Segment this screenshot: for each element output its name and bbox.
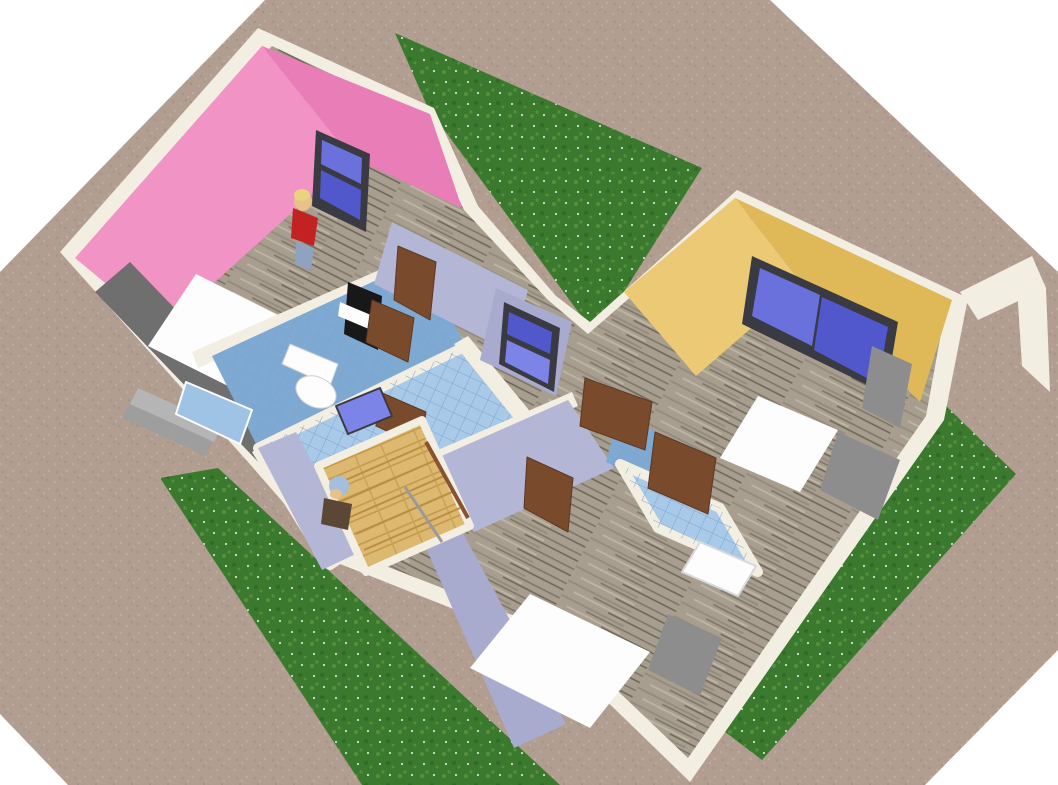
floor-plan-3d-scene [0,0,1058,785]
floor-plan-3d-render [0,0,1058,785]
person1-hair [294,189,310,201]
scene-shapes [0,0,1058,785]
person2-face [330,489,342,499]
